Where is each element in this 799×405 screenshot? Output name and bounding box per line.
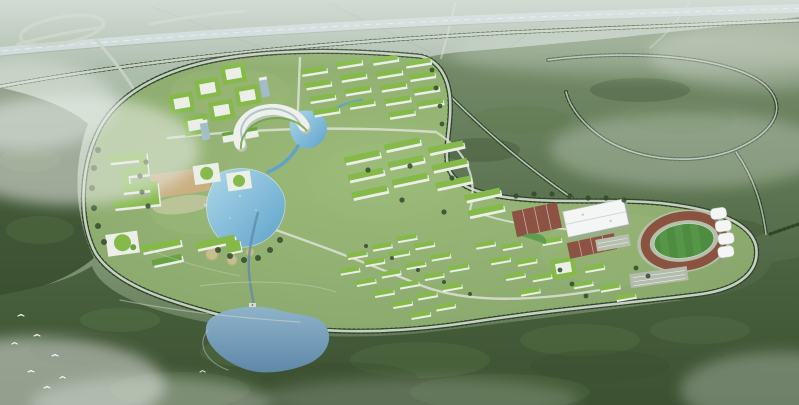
tree <box>570 282 575 287</box>
tree <box>567 193 572 198</box>
lake-pavilion <box>249 303 256 307</box>
pavilion-detail <box>252 304 254 306</box>
canopy-segment <box>717 232 734 245</box>
tree <box>101 239 107 245</box>
tree <box>91 205 97 211</box>
tree <box>277 237 283 243</box>
tree <box>416 268 420 272</box>
tree <box>407 163 412 168</box>
canopy-segment <box>710 207 727 220</box>
sparkle <box>255 209 257 211</box>
canopy-segment <box>715 219 732 232</box>
tree <box>634 266 639 271</box>
tree <box>365 167 370 172</box>
tree <box>468 292 472 296</box>
tree <box>364 244 368 248</box>
canopy-shade <box>530 350 670 382</box>
canopy-patch <box>6 216 74 244</box>
tree <box>227 253 233 259</box>
tree <box>621 197 626 202</box>
tree <box>646 274 651 279</box>
tree <box>585 195 590 200</box>
sparkle <box>239 195 241 197</box>
courtyard-building <box>171 94 195 114</box>
courtyard-building <box>236 86 260 106</box>
canopy-patch <box>650 316 750 344</box>
tree <box>267 247 273 253</box>
canopy-shade <box>590 78 690 102</box>
scene <box>0 0 799 405</box>
courtyard-building <box>197 79 221 99</box>
tree <box>255 255 261 261</box>
tree <box>215 247 221 253</box>
tree <box>531 191 536 196</box>
tree <box>449 175 454 180</box>
tree <box>441 209 446 214</box>
tree <box>438 104 443 109</box>
tree <box>390 256 394 260</box>
tree <box>145 203 150 208</box>
tree <box>442 280 446 284</box>
aerial-rendering-canvas <box>0 0 799 405</box>
canopy-segment <box>717 245 734 258</box>
tree <box>584 294 589 299</box>
tree <box>558 268 563 273</box>
tree <box>434 86 439 91</box>
sparkle <box>229 217 231 219</box>
courtyard-building <box>552 259 576 279</box>
tree <box>440 122 445 127</box>
tree <box>95 223 101 229</box>
canopy-patch <box>80 308 160 332</box>
tree <box>549 191 554 196</box>
tree <box>513 193 518 198</box>
tree <box>241 257 247 263</box>
courtyard-building <box>211 101 235 121</box>
tree <box>399 197 404 202</box>
tree <box>603 195 608 200</box>
